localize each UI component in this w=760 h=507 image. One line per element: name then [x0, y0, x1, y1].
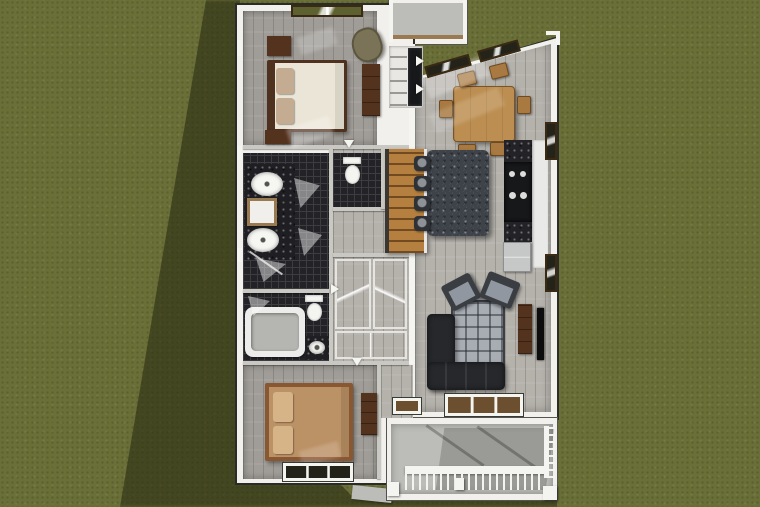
bedroom-2-door-marker	[352, 358, 362, 366]
hall-bath-door-marker	[331, 284, 339, 294]
bar-stool-4	[414, 216, 430, 231]
entry-door-marker-top	[416, 56, 424, 66]
kitchen-window-lower	[545, 254, 557, 292]
entry-porch-rail-right	[463, 0, 467, 42]
wall-bedroom2-east	[377, 365, 381, 479]
burner-2	[520, 171, 526, 177]
hallbath-sink	[309, 341, 325, 354]
entry-porch-floor	[393, 3, 463, 39]
vanity-sink-bottom	[247, 228, 279, 252]
west-window-tick-3	[237, 248, 242, 262]
bed-1-pillow-bottom	[276, 98, 294, 124]
burner-3	[509, 192, 516, 199]
porch-post-left	[387, 482, 399, 496]
floor-plan-canvas	[0, 0, 760, 507]
porch-post-center	[455, 478, 464, 490]
bedroom-2-dresser	[361, 393, 377, 435]
bedroom-1-door-marker	[344, 140, 354, 148]
wc-toilet-bowl	[345, 165, 360, 184]
west-window-tick-1	[237, 40, 242, 56]
kitchen-island	[427, 150, 489, 236]
dining-chair-6	[517, 96, 531, 114]
closet-right	[373, 259, 407, 329]
sectional-sofa-seat	[427, 362, 505, 390]
tv-console	[518, 304, 532, 354]
wc-toilet-tank	[343, 157, 361, 164]
living-window-small	[393, 398, 421, 414]
porch-post-right	[543, 486, 557, 500]
bed-1-foot-fold	[335, 63, 344, 129]
hallbath-toilet-bowl	[307, 303, 322, 321]
northeast-corner-cap-side	[556, 31, 560, 45]
vanity-sink-top	[251, 172, 283, 196]
hallbath-toilet-tank	[305, 295, 323, 302]
bed-2-pillow-top	[273, 392, 293, 422]
kitchen-counter-dark-top	[504, 140, 532, 162]
cooktop	[504, 162, 532, 222]
linen-closet	[335, 331, 407, 359]
accent-chair-right-seat	[485, 280, 513, 304]
west-window-tick-2	[237, 146, 242, 160]
porch-balusters-right	[549, 426, 555, 478]
bathtub-basin	[251, 313, 299, 351]
bar-stool-1	[414, 156, 430, 171]
wall-masterbath-south	[243, 289, 329, 293]
burner-1	[509, 171, 515, 177]
entry-porch-step	[393, 35, 463, 39]
wall-closet-north	[333, 253, 409, 257]
living-room-rug	[451, 300, 505, 366]
bar-stool-2	[414, 176, 430, 191]
burner-4	[520, 192, 527, 199]
bed-1-headboard	[270, 63, 275, 129]
accent-chair-left-seat	[448, 282, 475, 306]
wall-bedroom2-north	[243, 361, 409, 365]
kitchen-window-upper	[545, 122, 557, 160]
living-window-large	[445, 394, 523, 416]
entry-door-marker-bottom	[416, 84, 424, 94]
bedroom-1-window	[291, 5, 363, 17]
bed-2-fold	[341, 387, 349, 457]
porch-balusters-bottom	[405, 474, 545, 490]
television	[537, 308, 544, 360]
refrigerator	[503, 242, 531, 272]
nightstand-top	[267, 36, 291, 56]
bedroom-2-window	[283, 463, 353, 481]
bath-bench	[247, 198, 277, 226]
bar-stool-3	[414, 196, 430, 211]
closet-left	[335, 259, 371, 329]
porch-rail-bottom	[405, 466, 545, 474]
kitchen-counter-dark-bottom	[504, 222, 532, 242]
bed-1-pillow-top	[276, 68, 294, 94]
laundry-shelves	[390, 48, 407, 106]
wall-center-lower	[409, 256, 415, 364]
bed-2-pillow-bottom	[273, 426, 293, 454]
bedroom-1-dresser	[362, 64, 380, 116]
